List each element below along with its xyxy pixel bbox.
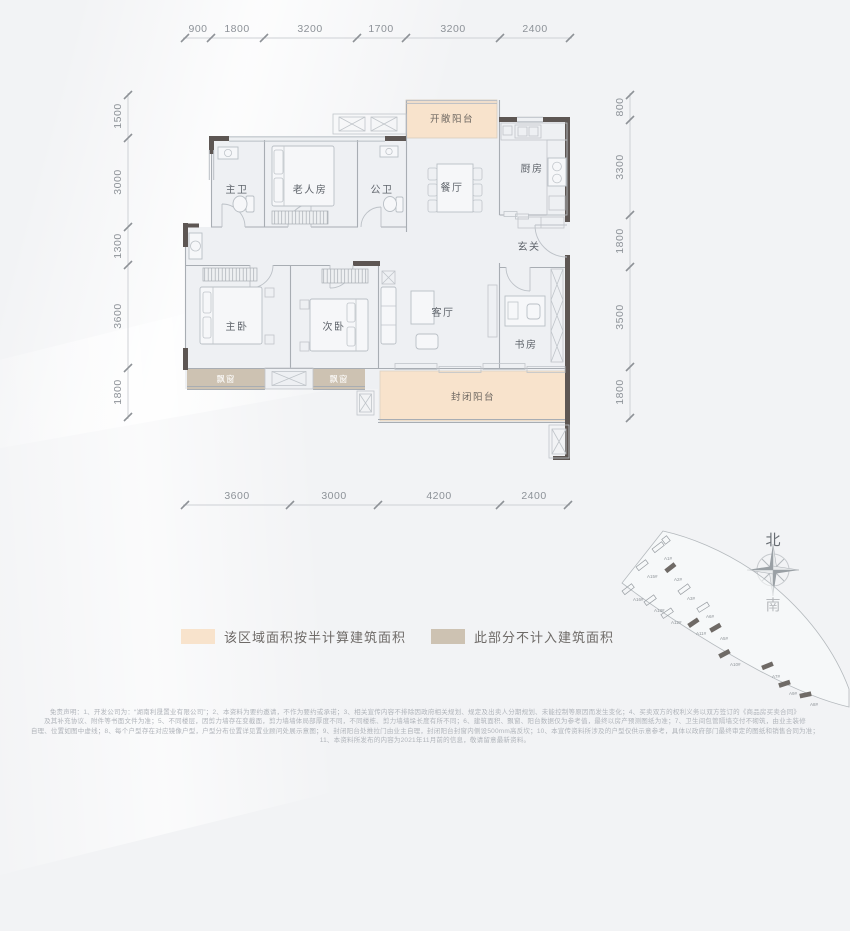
- label-enclosed-balcony: 封闭阳台: [451, 391, 495, 403]
- site-bldg-label: A6#: [706, 614, 715, 619]
- disclaimer: 免责声明：1、开发公司为：“湖南利晟置业有限公司”；2、本资料为要约邀请，不作为…: [0, 708, 850, 746]
- label-bay-window-1: 飘窗: [216, 374, 235, 384]
- dimension-bottom: 3600 3000 4200 2400: [181, 490, 572, 509]
- dim-top-0: 900: [188, 23, 207, 35]
- label-living-room: 客厅: [432, 306, 455, 319]
- dimension-top: 900 1800 3200 1700 3200 2400: [181, 23, 574, 42]
- legend-excluded: 此部分不计入建筑面积: [431, 628, 614, 645]
- legend-half-area-label: 该区域面积按半计算建筑面积: [224, 627, 406, 646]
- dim-left-0: 1500: [112, 103, 124, 128]
- dim-left-4: 1800: [112, 379, 124, 404]
- dim-bottom-0: 3600: [224, 490, 249, 502]
- site-bldg-label: A9#: [789, 691, 798, 696]
- label-elder-room: 老人房: [293, 183, 328, 196]
- dim-top-1: 1800: [224, 23, 249, 35]
- site-map: A1# A15# A2# A16# A13# A3# A12# A11# A6#…: [622, 531, 849, 707]
- disclaimer-line-2: 及其补充协议、附件等书面文件为准；5、不同楼层，因剪力墙存在变截面，剪力墙墙体局…: [0, 717, 850, 726]
- disclaimer-line-1: 免责声明：1、开发公司为：“湖南利晟置业有限公司”；2、本资料为要约邀请，不作为…: [0, 708, 850, 717]
- site-bldg-label: A10#: [730, 662, 741, 667]
- site-bldg-label: A3#: [687, 596, 696, 601]
- dimension-left: 1500 3000 1300 3600 1800: [112, 91, 132, 421]
- label-study: 书房: [515, 338, 538, 351]
- site-bldg-label: A11#: [696, 631, 707, 636]
- label-dining: 餐厅: [441, 181, 464, 194]
- dim-left-3: 3600: [112, 303, 124, 328]
- site-bldg-label: A2#: [674, 577, 683, 582]
- floorplan-page: { "dimensions": { "top": ["900","1800","…: [0, 0, 850, 758]
- legend-half-area-swatch: [181, 629, 215, 644]
- dim-top-3: 1700: [368, 23, 393, 35]
- dim-right-3: 3500: [614, 304, 626, 329]
- site-bldg-label: A16#: [633, 597, 644, 602]
- dim-bottom-2: 4200: [426, 490, 451, 502]
- label-master-bedroom: 主卧: [226, 320, 249, 333]
- site-bldg-label: A12#: [671, 620, 682, 625]
- dim-right-1: 3300: [614, 154, 626, 179]
- dim-left-2: 1300: [112, 233, 124, 258]
- legend-half-area: 该区域面积按半计算建筑面积: [181, 628, 406, 645]
- label-kitchen: 厨房: [521, 162, 544, 175]
- site-bldg-label: A13#: [654, 608, 665, 613]
- dim-top-4: 3200: [440, 23, 465, 35]
- dim-right-2: 1800: [614, 228, 626, 253]
- site-bldg-label: A1#: [664, 556, 673, 561]
- label-public-bath: 公卫: [371, 185, 394, 196]
- dim-top-5: 2400: [522, 23, 547, 35]
- dim-bottom-1: 3000: [321, 490, 346, 502]
- label-second-bedroom: 次卧: [323, 320, 346, 333]
- site-bldg-label: A15#: [647, 574, 658, 579]
- site-bldg-label: A5#: [720, 636, 729, 641]
- dim-right-0: 800: [614, 97, 626, 116]
- site-bldg-label: A7#: [772, 674, 781, 679]
- floor-plan: 主卫 老人房 公卫 餐厅 厨房 开敞阳台 玄关 主卧 次卧 客厅 书房 飘窗 飘…: [183, 100, 570, 458]
- dim-right-4: 1800: [614, 379, 626, 404]
- label-foyer: 玄关: [518, 240, 541, 253]
- dim-bottom-3: 2400: [521, 490, 546, 502]
- legend-excluded-label: 此部分不计入建筑面积: [474, 627, 614, 646]
- floor-plan-svg: 主卫 老人房 公卫 餐厅 厨房 开敞阳台 玄关 主卧 次卧 客厅 书房 飘窗 飘…: [0, 0, 850, 758]
- legend-excluded-swatch: [431, 629, 465, 644]
- label-master-bath: 主卫: [226, 184, 249, 196]
- dim-top-2: 3200: [297, 23, 322, 35]
- dimension-right: 800 3300 1800 3500 1800: [614, 91, 634, 422]
- label-open-balcony: 开敞阳台: [430, 113, 474, 125]
- site-bldg-label: A8#: [810, 702, 819, 707]
- disclaimer-line-4: 11、本资料所发布的内容为2021年11月前的信息，敬请留意最新资料。: [0, 736, 850, 745]
- label-bay-window-2: 飘窗: [329, 374, 348, 384]
- dim-left-1: 3000: [112, 169, 124, 194]
- disclaimer-line-3: 自理、位置如图中虚线；8、每个户型存在对应镜像户型，户型分布位置详见置业顾问处展…: [0, 727, 850, 736]
